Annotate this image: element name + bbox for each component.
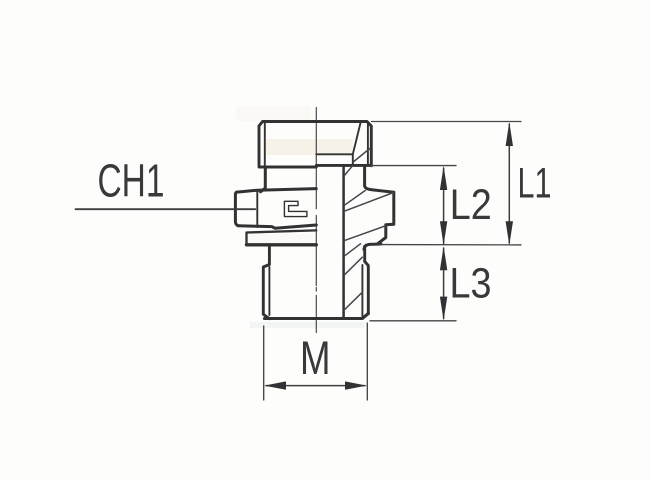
svg-text:CH1: CH1	[98, 154, 165, 206]
svg-text:L2: L2	[450, 181, 492, 228]
svg-text:M: M	[300, 331, 331, 384]
svg-text:L1: L1	[518, 159, 552, 207]
svg-text:L3: L3	[450, 261, 492, 308]
